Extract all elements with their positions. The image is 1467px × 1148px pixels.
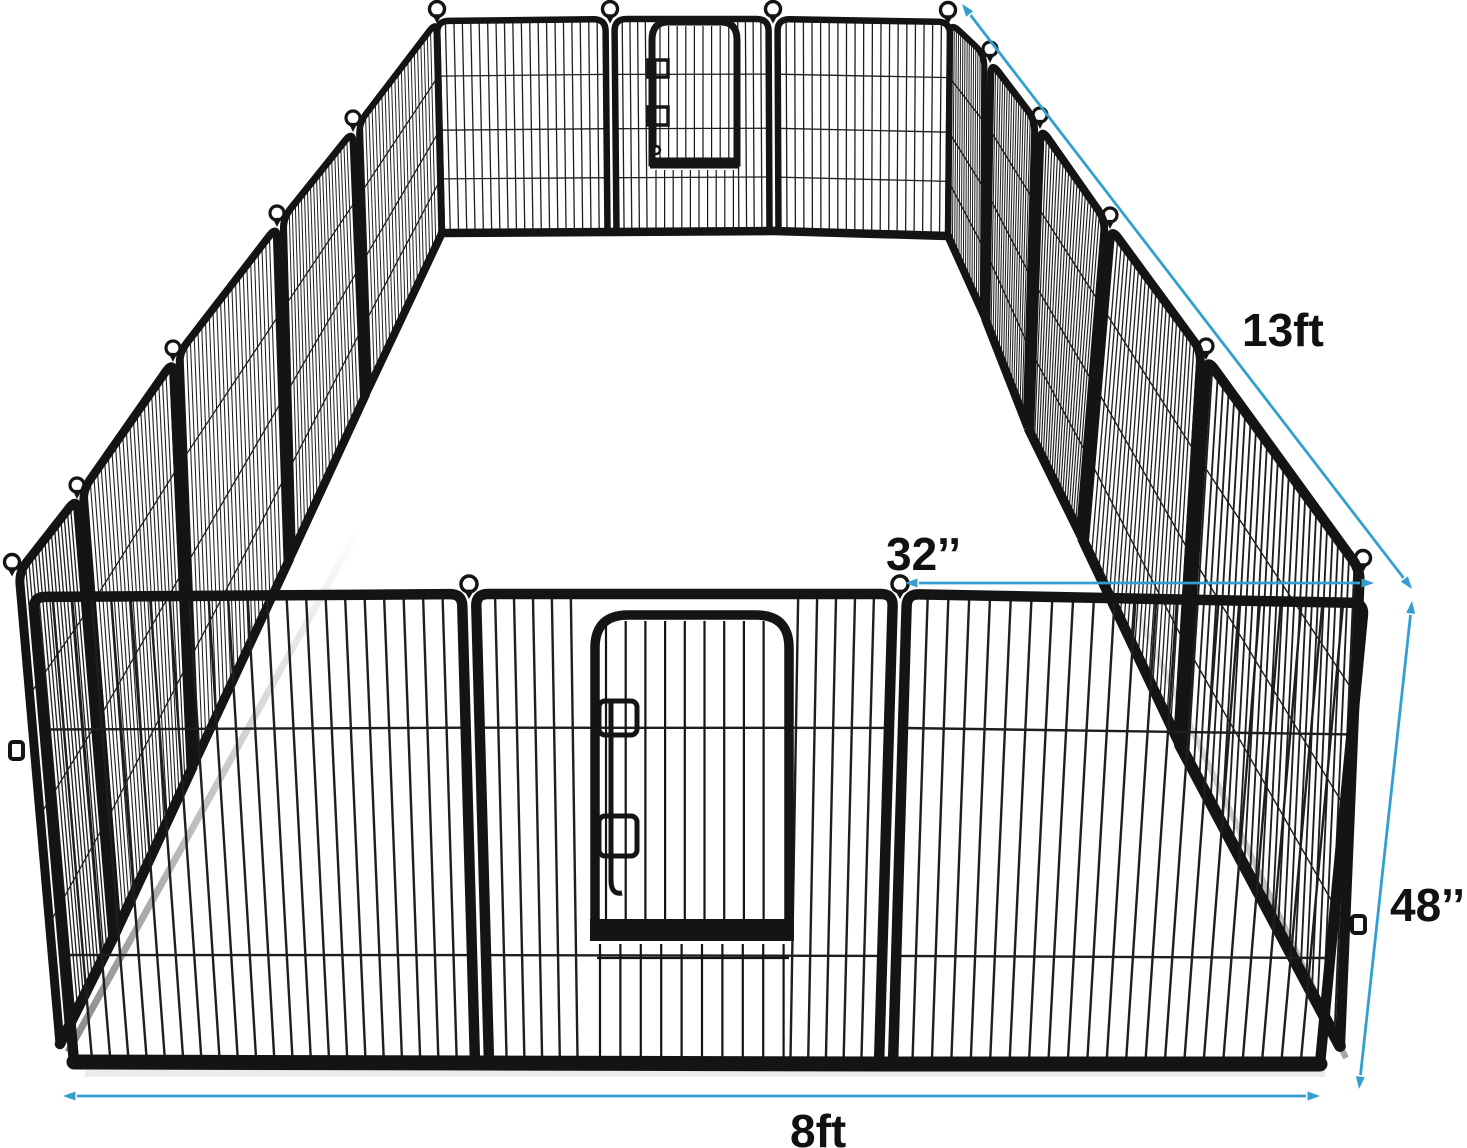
svg-text:48’’: 48’’ (1390, 879, 1465, 931)
svg-text:8ft: 8ft (790, 1105, 846, 1148)
svg-text:32’’: 32’’ (886, 528, 961, 580)
svg-text:13ft: 13ft (1242, 304, 1324, 356)
